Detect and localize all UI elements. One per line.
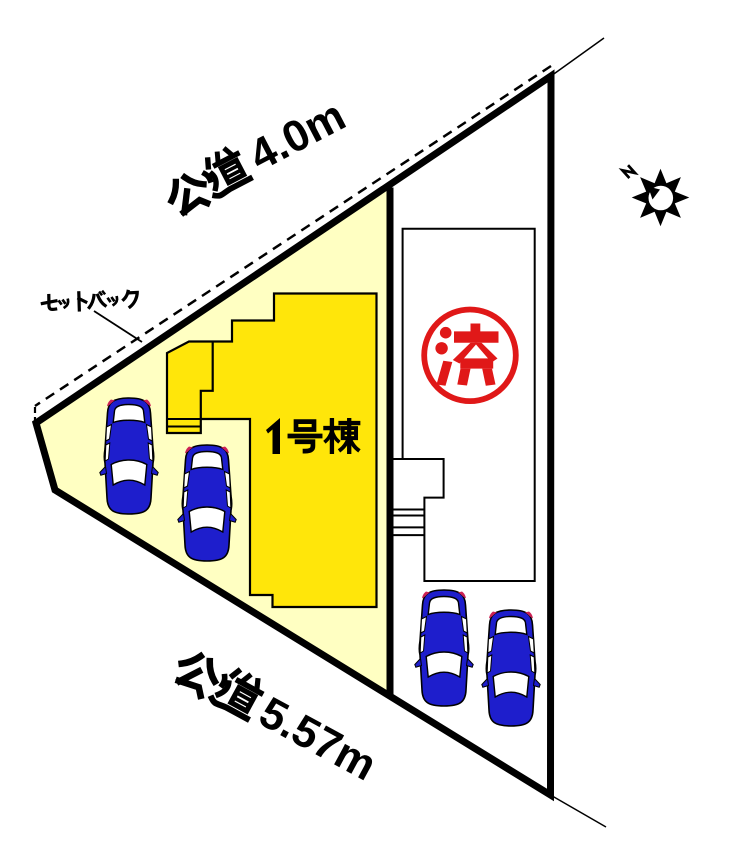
svg-text:4.0m: 4.0m [242, 91, 354, 181]
svg-text:5.57m: 5.57m [251, 688, 384, 791]
